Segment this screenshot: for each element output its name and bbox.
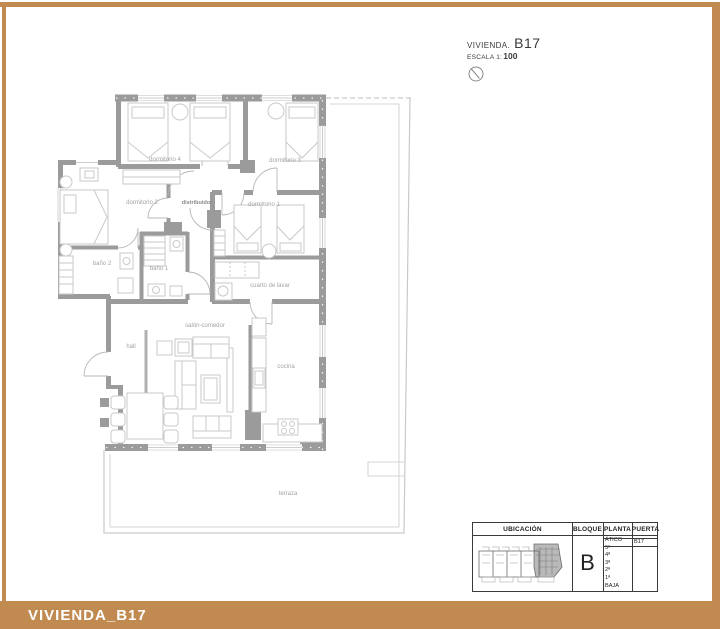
furniture-cocina	[252, 318, 322, 442]
planta-row-2: 2ª	[605, 567, 631, 575]
drawing-sheet: { "colors": { "frame": "#c18a50", "wall"…	[0, 0, 720, 629]
room-label-terraza: terraza	[279, 491, 298, 497]
furniture-dormitorio4	[123, 103, 230, 184]
room-label-dormitorio-3: dormitorio 3	[269, 158, 301, 164]
room-label-dormitorio-4: dormitorio 4	[149, 157, 181, 163]
planta-row-baja: BAJA	[605, 583, 631, 591]
room-label-bano-2: baño 2	[93, 261, 112, 267]
table-divider	[473, 535, 657, 536]
furniture-bano2	[59, 253, 133, 294]
furniture-cuarto-lavar	[215, 262, 259, 300]
selected-planta-box	[603, 538, 658, 548]
furniture	[59, 103, 322, 443]
room-label-cocina: cocina	[277, 364, 295, 370]
furniture-dormitorio2	[60, 168, 108, 256]
location-minimap	[474, 537, 570, 589]
furniture-dormitorio3	[268, 103, 318, 161]
room-label-bano-1: baño 1	[150, 266, 169, 272]
room-label-dormitorio-2: dormitorio 2	[126, 200, 158, 206]
footer-title: VIVIENDA_B17	[28, 607, 147, 624]
terrace-boundary	[104, 98, 412, 533]
room-label-cuarto-lavar: cuarto de lavar	[250, 283, 290, 289]
furniture-dormitorio1	[214, 205, 304, 258]
header-ubicacion: UBICACIÓN	[473, 523, 572, 535]
header-planta: PLANTA	[603, 523, 632, 535]
room-label-dormitorio-1: dormitorio 1	[248, 202, 280, 208]
room-label-hall: hall	[126, 344, 135, 350]
room-label-salon: salón-comedor	[185, 323, 225, 329]
header-bloque: BLOQUE	[572, 523, 603, 535]
room-label-distribuidor: distribuidor	[182, 200, 213, 206]
planta-row-4: 4ª	[605, 552, 631, 560]
header-puerta: PUERTA	[632, 523, 659, 535]
planta-row-1: 1ª	[605, 575, 631, 583]
info-table: UBICACIÓN BLOQUE PLANTA PUERTA	[472, 522, 658, 592]
footer-bar: VIVIENDA_B17	[0, 601, 720, 629]
bloque-value: B	[572, 535, 603, 591]
